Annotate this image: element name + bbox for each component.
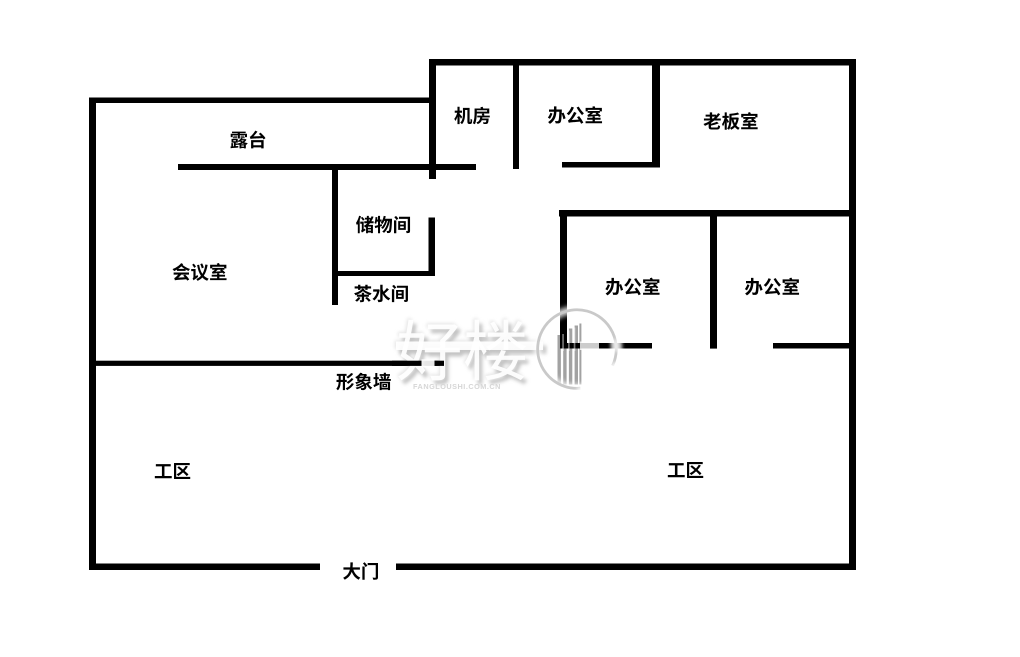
svg-text:FANGLOUSHI.COM.CN: FANGLOUSHI.COM.CN	[413, 382, 501, 391]
